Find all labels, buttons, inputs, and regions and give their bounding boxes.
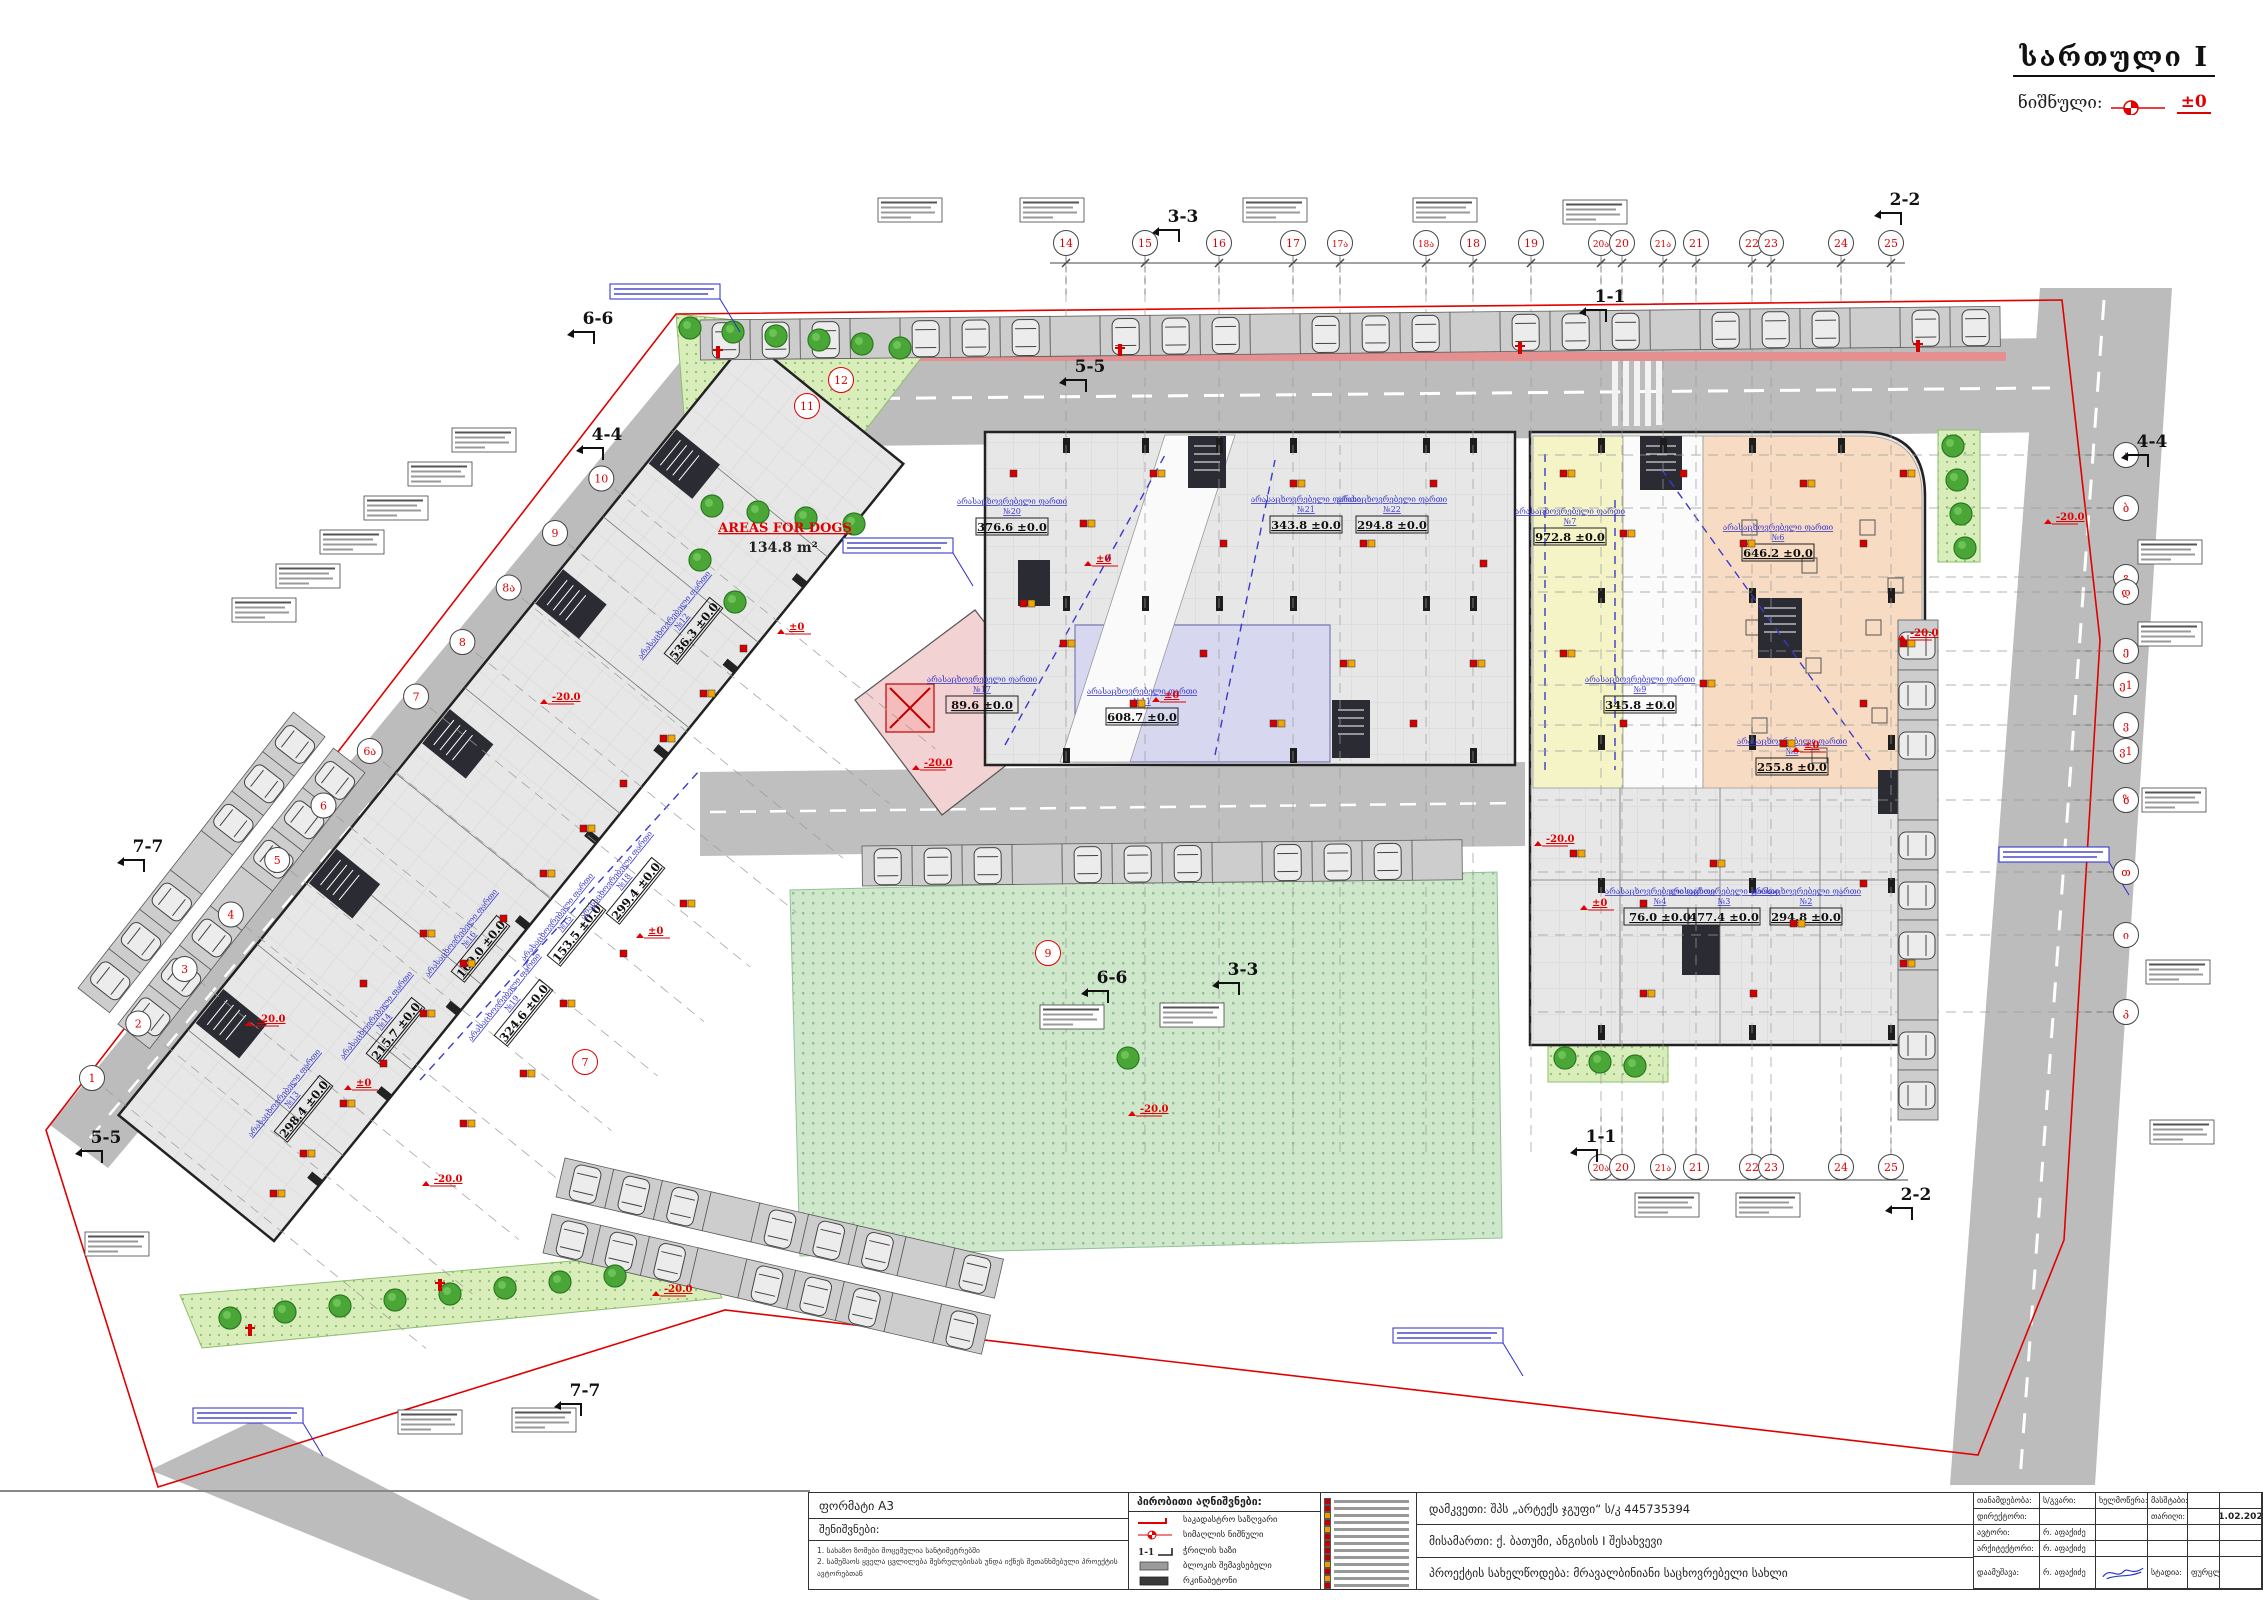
- section-marker: 2-2: [1885, 1185, 1931, 1220]
- level-mark: ±0: [636, 926, 670, 938]
- grid-bubble: 2: [126, 1011, 151, 1036]
- parking-stall: [1012, 844, 1062, 885]
- svg-text:10: 10: [594, 473, 608, 486]
- car-icon: [1374, 843, 1401, 879]
- grid-bubble: 6: [311, 793, 336, 818]
- svg-text:№9: №9: [1634, 685, 1647, 694]
- grid-bubble: ვ1: [2114, 739, 2139, 764]
- svg-text:±0: ±0: [1096, 554, 1111, 565]
- block-fill-icon: [1135, 1561, 1177, 1571]
- svg-text:№3: №3: [1718, 897, 1731, 906]
- page-title: სართული I: [2013, 42, 2215, 77]
- svg-text:არასაცხოვრებელი ფართი: არასაცხოვრებელი ფართი: [1751, 887, 1862, 896]
- svg-text:ე1: ე1: [2119, 679, 2132, 692]
- annotation-box: [2146, 960, 2210, 984]
- parking-stall: [1250, 314, 1300, 355]
- grid-bubble: 9: [1036, 941, 1061, 966]
- car-icon: [1562, 314, 1589, 350]
- grid-bubble: 1: [80, 1066, 105, 1091]
- svg-text:1: 1: [89, 1072, 96, 1085]
- annotation-box: [2150, 1120, 2214, 1144]
- tree-icon: [1624, 1055, 1646, 1077]
- col-date: თარიღი:: [2148, 1509, 2188, 1525]
- grid-bubble: ბ: [2114, 496, 2139, 521]
- blue-note-box: [1393, 1328, 1523, 1376]
- row-author: ავტორი:: [1974, 1525, 2040, 1541]
- fire-equipment-icon: [1680, 470, 1687, 477]
- title-block-staff-table: თანამდებობა: ს/გვარი: ხელმოწერა: მასშტაბ…: [1974, 1493, 2262, 1589]
- car-icon: [1762, 312, 1789, 348]
- sheet-frame-line: [0, 1490, 810, 1492]
- grid-bubble: 17: [1281, 231, 1306, 256]
- fire-legend-row: [1324, 1582, 1413, 1589]
- car-icon: [1174, 845, 1201, 881]
- annotation-box: [512, 1408, 576, 1432]
- svg-text:294.8 ±0.0: 294.8 ±0.0: [1357, 518, 1427, 532]
- fire-equipment-icon: [1620, 720, 1627, 727]
- svg-text:-20.0: -20.0: [434, 1174, 463, 1185]
- svg-text:972.8 ±0.0: 972.8 ±0.0: [1535, 530, 1605, 544]
- parking-stall: [1050, 316, 1100, 357]
- fire-equipment-icon: [1860, 880, 1867, 887]
- fire-legend-swatch: [1324, 1512, 1331, 1519]
- grid-bubble: 14: [1054, 231, 1079, 256]
- svg-text:11: 11: [800, 400, 814, 413]
- central-park: [790, 872, 1502, 1256]
- annotation-box: [1243, 198, 1307, 222]
- fire-equipment-icon: [1640, 900, 1647, 907]
- svg-text:16: 16: [1212, 237, 1226, 250]
- author-name: რ. აფაქიძე: [2040, 1525, 2096, 1541]
- tree-icon: [604, 1265, 626, 1287]
- tree-icon: [889, 337, 911, 359]
- tree-icon: [1946, 469, 1968, 491]
- car-icon: [1312, 316, 1339, 352]
- svg-text:20ა: 20ა: [1593, 240, 1609, 250]
- section-marker: 6-6: [567, 309, 613, 344]
- tree-icon: [1117, 1047, 1139, 1069]
- car-icon: [1212, 317, 1239, 353]
- fire-legend-row: [1324, 1554, 1413, 1561]
- parking-stall: [1898, 970, 1938, 1020]
- svg-text:5: 5: [274, 854, 281, 867]
- svg-text:-20.0: -20.0: [2056, 512, 2085, 523]
- svg-text:ზ: ზ: [2123, 794, 2130, 807]
- svg-text:არასაცხოვრებელი ფართი: არასაცხოვრებელი ფართი: [1723, 523, 1834, 532]
- grid-bubble: 7: [404, 684, 429, 709]
- svg-text:8: 8: [459, 636, 466, 649]
- svg-text:21ა: 21ა: [1655, 1164, 1671, 1174]
- svg-text:არასაცხოვრებელი ფართი: არასაცხოვრებელი ფართი: [1515, 507, 1626, 516]
- row-director: დირექტორი:: [1974, 1509, 2040, 1525]
- car-icon: [1162, 318, 1189, 354]
- svg-text:±0: ±0: [1804, 740, 1819, 751]
- svg-text:22: 22: [1745, 237, 1759, 250]
- svg-text:4: 4: [227, 909, 234, 922]
- grid-bubble: ე: [2114, 639, 2139, 664]
- annotation-box: [408, 462, 472, 486]
- car-icon: [1962, 310, 1989, 346]
- fire-legend-swatch: [1324, 1547, 1331, 1554]
- svg-text:21ა: 21ა: [1655, 240, 1671, 250]
- tree-icon: [439, 1283, 461, 1305]
- tree-icon: [722, 321, 744, 343]
- address-line: მისამართი: ქ. ბათუმი, ანგისის I შესახვევ…: [1417, 1525, 1973, 1557]
- fire-equipment-icon: [1410, 720, 1417, 727]
- grid-bubble: 8: [450, 630, 475, 655]
- fire-equipment-icon: [1860, 540, 1867, 547]
- fire-equipment-icon: [740, 645, 747, 652]
- svg-text:24: 24: [1834, 1161, 1848, 1174]
- fire-legend-row: [1324, 1533, 1413, 1540]
- grid-bubble: ი: [2114, 923, 2139, 948]
- sheet-title-block: სართული I ნიშნული: ±0: [2013, 42, 2215, 115]
- svg-text:№21: №21: [1297, 505, 1315, 514]
- svg-text:№17: №17: [973, 685, 991, 694]
- tree-icon: [679, 317, 701, 339]
- fire-legend-row: [1324, 1498, 1413, 1505]
- tree-icon: [329, 1295, 351, 1317]
- car-icon: [1899, 1082, 1935, 1109]
- tree-icon: [701, 495, 723, 517]
- svg-text:255.8 ±0.0: 255.8 ±0.0: [1757, 760, 1827, 774]
- svg-text:20: 20: [1615, 237, 1629, 250]
- grid-bubble: 19: [1519, 231, 1544, 256]
- car-icon: [1899, 682, 1935, 709]
- svg-text:7: 7: [413, 691, 420, 704]
- fire-legend-swatch: [1324, 1526, 1331, 1533]
- row-architect: არქიტექტორი:: [1974, 1541, 2040, 1557]
- annotation-box: [398, 1410, 462, 1434]
- svg-text:376.6 ±0.0: 376.6 ±0.0: [977, 520, 1047, 534]
- tree-icon: [851, 333, 873, 355]
- grid-bubble: თ: [2114, 860, 2139, 885]
- col-position: თანამდებობა:: [1974, 1493, 2040, 1509]
- grid-bubble: 20: [1610, 1155, 1635, 1180]
- svg-text:25: 25: [1884, 237, 1898, 250]
- svg-text:24: 24: [1834, 237, 1848, 250]
- car-icon: [1074, 846, 1101, 882]
- car-icon: [874, 849, 901, 885]
- annotation-box: [1040, 1005, 1104, 1029]
- fire-legend-row: [1324, 1561, 1413, 1568]
- tree-icon: [549, 1271, 571, 1293]
- svg-text:7-7: 7-7: [133, 837, 164, 857]
- annotation-box: [320, 530, 384, 554]
- svg-text:-20.0: -20.0: [552, 692, 581, 703]
- grid-bubble: 10: [589, 466, 614, 491]
- title-block-format-notes: ფორმატი A3 შენიშვნები: 1. სახაზო ზომები …: [809, 1493, 1129, 1589]
- svg-text:არასაცხოვრებელი ფართი: არასაცხოვრებელი ფართი: [1337, 495, 1448, 504]
- svg-text:20ა: 20ა: [1593, 1164, 1609, 1174]
- car-icon: [1362, 316, 1389, 352]
- project-line: პროექტის სახელწოდება: მრავალბინიანი საცხ…: [1417, 1558, 1973, 1589]
- client-line: დამკვეთი: შპს „არტექს ჯგუფი“ ს/კ 4457353…: [1417, 1493, 1973, 1525]
- svg-text:22: 22: [1745, 1161, 1759, 1174]
- fire-legend-row: [1324, 1519, 1413, 1526]
- svg-text:294.8 ±0.0: 294.8 ±0.0: [1771, 910, 1841, 924]
- svg-text:№22: №22: [1383, 505, 1401, 514]
- legend-row: ბლოკის შემავსებელი: [1129, 1558, 1320, 1573]
- annotation-box: [1413, 198, 1477, 222]
- svg-text:ვ: ვ: [2123, 719, 2129, 732]
- annotation-box: [1160, 1003, 1224, 1027]
- svg-text:345.8 ±0.0: 345.8 ±0.0: [1605, 698, 1675, 712]
- fire-equipment-icon: [620, 780, 627, 787]
- concrete-fill-icon: [1135, 1576, 1177, 1586]
- parking-stall: [1650, 310, 1700, 351]
- svg-text:№6: №6: [1772, 533, 1785, 542]
- car-icon: [1899, 1032, 1935, 1059]
- fire-equipment-icon: [560, 1000, 575, 1007]
- svg-text:№2: №2: [1800, 897, 1813, 906]
- svg-text:18ა: 18ა: [1418, 240, 1434, 250]
- tree-icon: [494, 1277, 516, 1299]
- annotation-box: [2142, 788, 2206, 812]
- title-block-project-info: დამკვეთი: შპს „არტექს ჯგუფი“ ს/კ 4457353…: [1417, 1493, 1974, 1589]
- section-line-icon: 1-1: [1135, 1544, 1177, 1558]
- svg-text:21: 21: [1689, 1161, 1703, 1174]
- svg-text:ე: ე: [2123, 645, 2129, 658]
- car-icon: [1324, 844, 1351, 880]
- annotation-box: [1020, 198, 1084, 222]
- car-icon: [1812, 311, 1839, 347]
- fire-equipment-icon: [1200, 650, 1207, 657]
- fire-equipment-icon: [1010, 470, 1017, 477]
- car-icon: [1899, 732, 1935, 759]
- grid-bubble: 6ა: [357, 739, 382, 764]
- grid-bubble: 23: [1759, 1155, 1784, 1180]
- svg-text:ი: ი: [2123, 929, 2129, 942]
- stage-label: სტადია:: [2148, 1557, 2188, 1589]
- fire-legend-swatch: [1324, 1554, 1331, 1561]
- level-label: ნიშნული:: [2018, 93, 2103, 113]
- notes-header: შენიშვნები:: [809, 1519, 1128, 1541]
- car-icon: [1899, 882, 1935, 909]
- svg-text:6ა: 6ა: [363, 745, 376, 758]
- fire-legend-swatch: [1324, 1582, 1331, 1589]
- sheets-label: ფურცლები:: [2188, 1557, 2220, 1589]
- grid-bubble: 5: [265, 848, 290, 873]
- grid-bubble: 3: [172, 957, 197, 982]
- svg-text:არასაცხოვრებელი ფართი: არასაცხოვრებელი ფართი: [1087, 687, 1198, 696]
- grid-bubble: 8ა: [496, 575, 521, 600]
- parking-stall: [884, 1293, 942, 1343]
- svg-text:15: 15: [1138, 237, 1152, 250]
- svg-text:1-1: 1-1: [1586, 1127, 1617, 1147]
- parking-stall: [1412, 840, 1462, 881]
- col-sign: ხელმოწერა:: [2096, 1493, 2148, 1509]
- fire-equipment-icon: [620, 950, 627, 957]
- svg-text:№20: №20: [1003, 507, 1021, 516]
- car-icon: [1274, 844, 1301, 880]
- fire-equipment-icon: [1430, 480, 1437, 487]
- annotation-box: [1635, 1193, 1699, 1217]
- svg-text:608.7 ±0.0: 608.7 ±0.0: [1107, 710, 1177, 724]
- grid-bubble: 9: [543, 521, 568, 546]
- note-1: 1. სახაზო ზომები მოცემულია სანტიმეტრებში: [817, 1545, 1120, 1556]
- annotation-box: [232, 598, 296, 622]
- drawing-sheet: სართული I ნიშნული: ±0: [0, 0, 2263, 1600]
- grid-bubble: 23: [1759, 231, 1784, 256]
- fire-legend-swatch: [1324, 1568, 1331, 1575]
- svg-text:-20.0: -20.0: [1546, 834, 1575, 845]
- tree-icon: [747, 501, 769, 523]
- annotation-box: [364, 496, 428, 520]
- fire-equipment-icon: [1480, 560, 1487, 567]
- svg-text:8ა: 8ა: [502, 582, 515, 595]
- svg-text:7: 7: [582, 1056, 589, 1069]
- svg-text:12: 12: [834, 374, 848, 387]
- svg-text:477.4 ±0.0: 477.4 ±0.0: [1689, 910, 1759, 924]
- section-marker: 3-3: [1152, 207, 1198, 242]
- svg-text:20: 20: [1615, 1161, 1629, 1174]
- annotation-box: [1736, 1193, 1800, 1217]
- svg-text:-20.0: -20.0: [924, 758, 953, 769]
- svg-text:2-2: 2-2: [1901, 1185, 1932, 1205]
- level-mark: ±0: [777, 622, 811, 634]
- grid-bubble: დ: [2114, 580, 2139, 605]
- grid-bubble: 20: [1610, 231, 1635, 256]
- svg-text:9: 9: [1045, 947, 1052, 960]
- svg-text:23: 23: [1764, 1161, 1778, 1174]
- grid-bubble: 18: [1461, 231, 1486, 256]
- section-marker: 2-2: [1874, 190, 1920, 225]
- site-plan-drawing: არასაცხოვრებელი ფართი№20376.6 ±0.0არასაც…: [0, 0, 2263, 1600]
- fire-legend-swatch: [1324, 1505, 1331, 1512]
- fire-equipment-icon: [460, 1120, 475, 1127]
- note-2: 2. სამუშაოს ყველა ცვლილება შესრულებისას …: [817, 1556, 1120, 1579]
- svg-text:9: 9: [552, 527, 559, 540]
- svg-text:6-6: 6-6: [1097, 968, 1128, 988]
- svg-text:4-4: 4-4: [2137, 432, 2168, 452]
- car-icon: [924, 848, 951, 884]
- section-marker: 7-7: [117, 837, 163, 872]
- road-bottom-left: [150, 1420, 600, 1600]
- parking-stall: [702, 1192, 760, 1242]
- svg-text:არასაცხოვრებელი ფართი: არასაცხოვრებელი ფართი: [957, 497, 1068, 506]
- svg-text:±0: ±0: [1592, 898, 1607, 909]
- grid-bubble: 21: [1684, 1155, 1709, 1180]
- car-icon: [1899, 932, 1935, 959]
- tree-icon: [689, 549, 711, 571]
- grid-bubble: 21ა: [1651, 231, 1676, 256]
- fire-equipment-icon: [680, 900, 695, 907]
- legend-row: რკინაბეტონი: [1129, 1574, 1320, 1589]
- row-developed: დაამუშავა:: [1974, 1557, 2040, 1589]
- grid-bubble: 21ა: [1651, 1155, 1676, 1180]
- svg-text:±0: ±0: [648, 926, 663, 937]
- fire-equipment-icon: [1860, 700, 1867, 707]
- svg-text:№4: №4: [1654, 897, 1667, 906]
- parking-row: [862, 840, 1462, 886]
- grid-bubble: ზ: [2114, 788, 2139, 813]
- fire-equipment-icon: [500, 915, 507, 922]
- legend-header: პირობითი აღნიშვნები:: [1129, 1493, 1320, 1512]
- annotation-box: [1563, 200, 1627, 224]
- grid-bubble: ვ: [2114, 713, 2139, 738]
- svg-text:არასაცხოვრებელი ფართი: არასაცხოვრებელი ფართი: [927, 675, 1038, 684]
- fire-equipment-icon: [1220, 540, 1227, 547]
- fire-legend-swatch: [1324, 1561, 1331, 1568]
- svg-text:±0: ±0: [789, 622, 804, 633]
- fire-equipment-icon: [360, 980, 367, 987]
- level-value: ±0: [2177, 92, 2211, 114]
- fire-legend-row: [1324, 1512, 1413, 1519]
- title-block: ფორმატი A3 შენიშვნები: 1. სახაზო ზომები …: [808, 1492, 2263, 1590]
- legend-row: საკადასტრო საზღვარი: [1129, 1512, 1320, 1527]
- grid-bubble: 25: [1879, 231, 1904, 256]
- car-icon: [1012, 319, 1039, 355]
- level-mark: -20.0: [422, 1174, 463, 1186]
- svg-text:5-5: 5-5: [91, 1128, 122, 1148]
- legend-row: სიმაღლის ნიშნული: [1129, 1527, 1320, 1542]
- tree-icon: [1954, 537, 1976, 559]
- svg-text:±0: ±0: [1164, 690, 1179, 701]
- svg-text:23: 23: [1764, 237, 1778, 250]
- svg-text:-20.0: -20.0: [1140, 1104, 1169, 1115]
- fire-equipment-icon: [1750, 990, 1757, 997]
- svg-text:3-3: 3-3: [1168, 207, 1199, 227]
- svg-text:134.8 m²: 134.8 m²: [748, 540, 818, 556]
- car-icon: [1612, 313, 1639, 349]
- svg-text:25: 25: [1884, 1161, 1898, 1174]
- svg-text:89.6 ±0.0: 89.6 ±0.0: [951, 698, 1013, 712]
- grid-bubble: 24: [1829, 231, 1854, 256]
- svg-text:2-2: 2-2: [1890, 190, 1921, 210]
- fire-legend-swatch: [1324, 1540, 1331, 1547]
- svg-text:3-3: 3-3: [1228, 960, 1259, 980]
- grid-bubble: 15: [1133, 231, 1158, 256]
- car-icon: [1124, 846, 1151, 882]
- grid-bubble: 11: [795, 394, 820, 419]
- car-icon: [974, 848, 1001, 884]
- annotation-box: [85, 1232, 149, 1256]
- svg-text:18: 18: [1466, 237, 1480, 250]
- blue-note-box: [843, 538, 973, 586]
- cadastral-boundary-icon: [1135, 1515, 1177, 1525]
- svg-text:არასაცხოვრებელი ფართი: არასაცხოვრებელი ფართი: [1585, 675, 1696, 684]
- annotation-box: [452, 428, 516, 452]
- svg-text:76.0 ±0.0: 76.0 ±0.0: [1629, 910, 1691, 924]
- fire-legend-row: [1324, 1505, 1413, 1512]
- level-mark-icon: [2111, 91, 2169, 115]
- svg-text:-20.0: -20.0: [664, 1284, 693, 1295]
- architect-name: რ. აფაქიძე: [2040, 1541, 2096, 1557]
- car-icon: [912, 320, 939, 356]
- svg-text:343.8 ±0.0: 343.8 ±0.0: [1271, 518, 1341, 532]
- svg-text:21: 21: [1689, 237, 1703, 250]
- col-name: ს/გვარი:: [2040, 1493, 2096, 1509]
- svg-text:№7: №7: [1564, 517, 1577, 526]
- tree-icon: [808, 329, 830, 351]
- svg-text:646.2 ±0.0: 646.2 ±0.0: [1743, 546, 1813, 560]
- title-block-legend: პირობითი აღნიშვნები: საკადასტრო საზღვარი…: [1129, 1493, 1321, 1589]
- svg-text:5-5: 5-5: [1075, 357, 1106, 377]
- tree-icon: [384, 1289, 406, 1311]
- grid-bubble: 25: [1879, 1155, 1904, 1180]
- tree-icon: [765, 325, 787, 347]
- developer-name: რ. აფაქიძე: [2040, 1557, 2096, 1589]
- annotation-box: [878, 198, 942, 222]
- tree-icon: [1950, 503, 1972, 525]
- svg-text:-20.0: -20.0: [1910, 628, 1939, 639]
- tree-icon: [1554, 1047, 1576, 1069]
- date-value: 21.02.2025: [2220, 1509, 2262, 1525]
- legend-row: 1-1 ჭრილის ხაზი: [1129, 1543, 1320, 1558]
- grid-bubble: 18ა: [1414, 231, 1439, 256]
- svg-text:4-4: 4-4: [592, 425, 623, 445]
